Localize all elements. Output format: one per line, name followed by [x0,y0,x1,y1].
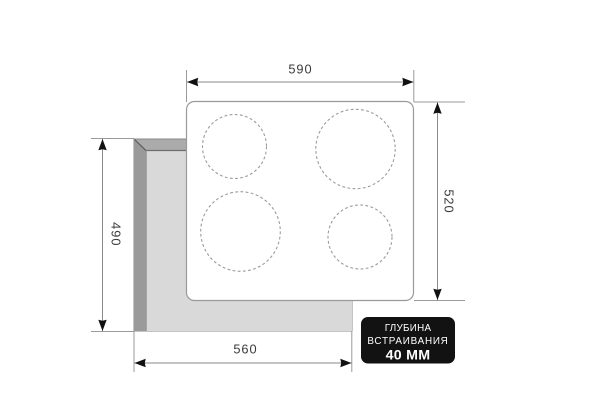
svg-text:590: 590 [288,62,312,77]
svg-text:40 ММ: 40 ММ [386,348,431,364]
svg-text:ГЛУБИНА: ГЛУБИНА [385,323,432,334]
svg-text:520: 520 [442,189,457,213]
svg-text:ВСТРАИВАНИЯ: ВСТРАИВАНИЯ [367,336,448,347]
svg-text:490: 490 [109,222,124,246]
svg-text:560: 560 [233,342,257,357]
